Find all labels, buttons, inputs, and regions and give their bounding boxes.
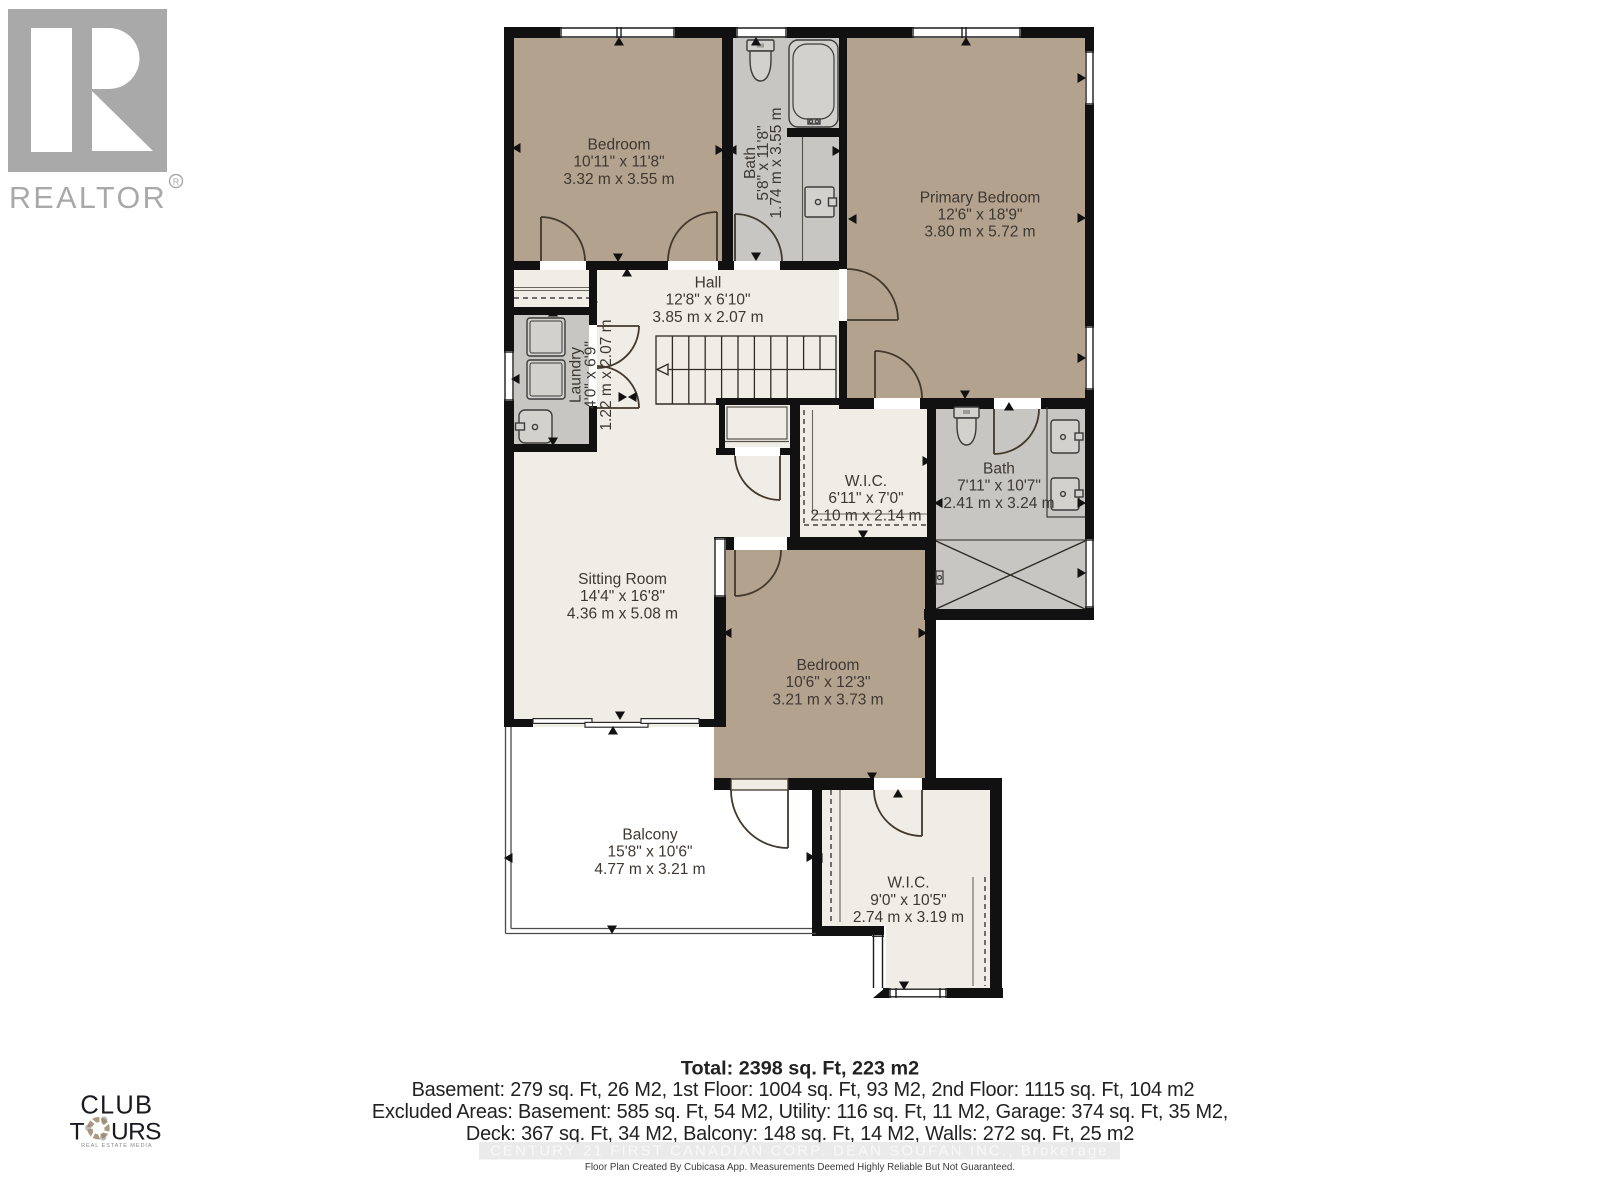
svg-text:3.21 m x 3.73 m: 3.21 m x 3.73 m	[772, 691, 883, 708]
svg-text:2.41 m x 3.24 m: 2.41 m x 3.24 m	[943, 495, 1054, 512]
svg-text:Hall: Hall	[695, 275, 722, 292]
svg-text:4.36 m x 5.08 m: 4.36 m x 5.08 m	[567, 605, 678, 622]
svg-text:9'0" x 10'5": 9'0" x 10'5"	[870, 892, 946, 909]
svg-text:3.80 m x 5.72 m: 3.80 m x 5.72 m	[924, 224, 1035, 241]
svg-text:4.77 m x 3.21 m: 4.77 m x 3.21 m	[594, 861, 705, 878]
svg-text:URS: URS	[111, 1118, 161, 1145]
svg-text:6'11" x 7'0": 6'11" x 7'0"	[828, 490, 903, 507]
svg-text:10'6" x 12'3": 10'6" x 12'3"	[785, 674, 870, 691]
svg-text:Floor Plan Created By Cubicasa: Floor Plan Created By Cubicasa App. Meas…	[585, 1162, 1015, 1173]
svg-text:3.32 m x 3.55 m: 3.32 m x 3.55 m	[563, 171, 674, 188]
svg-text:Excluded Areas: Basement: 585: Excluded Areas: Basement: 585 sq. Ft, 54…	[372, 1101, 1228, 1123]
svg-text:Bath: Bath	[983, 461, 1015, 478]
svg-text:1.22 m x 2.07 m: 1.22 m x 2.07 m	[598, 319, 615, 430]
svg-text:Primary Bedroom: Primary Bedroom	[920, 189, 1041, 206]
svg-text:CLUB: CLUB	[80, 1092, 153, 1120]
svg-text:Balcony: Balcony	[622, 827, 677, 844]
svg-text:14'4" x 16'8": 14'4" x 16'8"	[580, 588, 665, 605]
svg-text:1.74 m x 3.55 m: 1.74 m x 3.55 m	[768, 107, 785, 218]
svg-text:12'6" x 18'9": 12'6" x 18'9"	[937, 207, 1022, 224]
svg-text:2.74 m x 3.19 m: 2.74 m x 3.19 m	[853, 909, 964, 926]
svg-text:Sitting Room: Sitting Room	[578, 571, 667, 588]
svg-text:CENTURY 21 FIRST CANADIAN CORP: CENTURY 21 FIRST CANADIAN CORP. DEAN SOU…	[490, 1143, 1109, 1160]
svg-text:REALTOR: REALTOR	[9, 181, 167, 215]
svg-text:7'11" x 10'7": 7'11" x 10'7"	[957, 478, 1041, 495]
svg-text:W.I.C.: W.I.C.	[845, 473, 887, 490]
svg-text:12'8" x 6'10": 12'8" x 6'10"	[665, 292, 750, 309]
svg-text:T: T	[70, 1118, 85, 1145]
svg-text:REAL ESTATE MEDIA: REAL ESTATE MEDIA	[81, 1143, 152, 1149]
svg-text:10'11" x 11'8": 10'11" x 11'8"	[573, 154, 664, 171]
svg-text:Total: 2398 sq. Ft, 223 m2: Total: 2398 sq. Ft, 223 m2	[681, 1058, 919, 1080]
svg-text:W.I.C.: W.I.C.	[887, 875, 929, 892]
svg-text:Bedroom: Bedroom	[588, 136, 651, 153]
svg-text:Basement: 279 sq. Ft, 26 M2, 1: Basement: 279 sq. Ft, 26 M2, 1st Floor: …	[412, 1079, 1195, 1101]
svg-text:3.85 m x 2.07 m: 3.85 m x 2.07 m	[652, 309, 763, 326]
svg-text:2.10 m x 2.14 m: 2.10 m x 2.14 m	[810, 507, 921, 524]
svg-text:4'0" x 6'9": 4'0" x 6'9"	[583, 341, 600, 409]
svg-text:15'8" x 10'6": 15'8" x 10'6"	[607, 844, 692, 861]
svg-text:Bedroom: Bedroom	[797, 657, 860, 674]
svg-text:R: R	[173, 177, 180, 187]
